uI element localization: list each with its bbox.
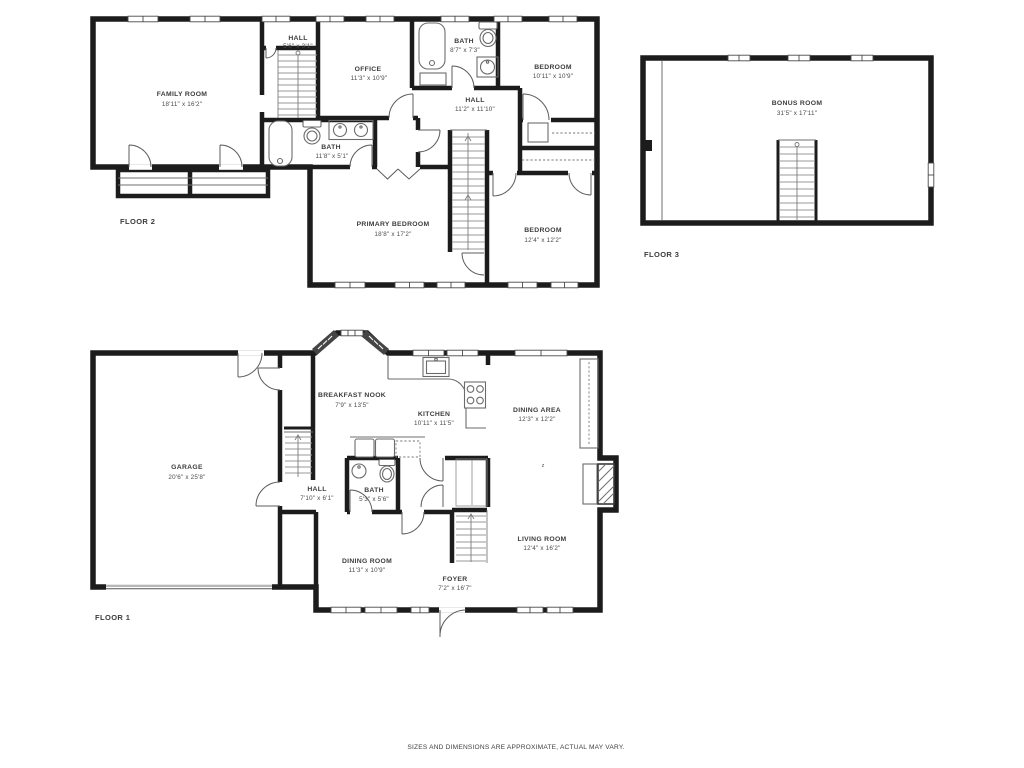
room-dims: 12'3" x 12'2"	[518, 416, 555, 423]
stove-icon	[465, 382, 486, 408]
room-label: OFFICE	[355, 66, 382, 73]
room-label: KITCHEN	[418, 411, 450, 418]
bath-cabinet-icon	[420, 73, 446, 85]
room-dims: 18'11" x 16'2"	[162, 101, 202, 108]
room-dims: 5'6" x 3'1"	[283, 43, 313, 50]
floor-3-label: FLOOR 3	[644, 250, 679, 259]
room-dims: 11'2" x 11'10"	[455, 106, 495, 113]
bay-window	[312, 330, 389, 355]
room-label: PRIMARY BEDROOM	[357, 221, 430, 228]
bathtub-icon	[419, 23, 445, 69]
floor-1-hall-stairs	[284, 432, 313, 477]
room-label: BREAKFAST NOOK	[318, 392, 386, 399]
hearth	[583, 464, 597, 504]
floor-1-fixtures	[352, 356, 614, 504]
floor-2-closets	[522, 123, 595, 160]
room-dims: 20'6" x 25'8"	[168, 474, 205, 481]
room-label: HALL	[307, 486, 326, 493]
room-label: BONUS ROOM	[772, 100, 823, 107]
room-dims: 10'11" x 10'9"	[533, 73, 573, 80]
room-dims: 10'11" x 11'5"	[414, 420, 454, 427]
floor-2-plan: FAMILY ROOM 18'11" x 16'2" HALL 5'6" x 3…	[93, 16, 597, 288]
room-dims: 8'7" x 7'3"	[450, 47, 480, 54]
disclaimer: SIZES AND DIMENSIONS ARE APPROXIMATE, AC…	[407, 744, 624, 751]
room-label: BATH	[364, 487, 384, 494]
wall-nub	[643, 140, 652, 151]
bifold-closet-doors	[377, 169, 420, 179]
room-dims: 7'2" x 16'7"	[438, 585, 471, 592]
room-dims: 7'9" x 13'5"	[335, 402, 368, 409]
toilet-icon	[379, 460, 395, 466]
room-label: HALL	[465, 97, 484, 104]
floor-2-deck	[118, 170, 268, 196]
room-label: BATH	[454, 38, 474, 45]
room-dims: 12'4" x 12'2"	[524, 237, 561, 244]
room-label: FAMILY ROOM	[157, 91, 208, 98]
sink-icon	[481, 60, 495, 74]
room-dims: 11'3" x 10'9"	[349, 567, 386, 574]
room-label: GARAGE	[171, 464, 203, 471]
dryer-icon	[376, 439, 395, 457]
floor-2-label: FLOOR 2	[120, 217, 155, 226]
north-marker: z	[542, 463, 545, 469]
room-label: HALL	[288, 35, 307, 42]
room-label: FOYER	[443, 576, 468, 583]
front-door	[440, 610, 466, 637]
room-dims: 31'5" x 17'11"	[777, 110, 817, 117]
floor-1-foyer-stairs	[456, 510, 487, 563]
stair-closet	[456, 459, 487, 506]
washer-icon	[355, 439, 374, 457]
floorplan-canvas: FAMILY ROOM 18'11" x 16'2" HALL 5'6" x 3…	[0, 0, 1024, 768]
floor-3-room-labels: BONUS ROOM 31'5" x 17'11"	[772, 100, 823, 117]
room-dims: 11'8" x 5'1"	[316, 153, 349, 160]
room-dims: 7'10" x 6'1"	[300, 495, 333, 502]
floor-1-windows	[106, 350, 573, 613]
room-label: BEDROOM	[534, 64, 572, 71]
room-label: LIVING ROOM	[518, 536, 567, 543]
toilet-icon	[303, 121, 321, 128]
room-label: DINING ROOM	[342, 558, 392, 565]
floorplan-page: FAMILY ROOM 18'11" x 16'2" HALL 5'6" x 3…	[0, 0, 1024, 768]
floor-3-windows	[728, 55, 934, 187]
floor-1-plan: z GARAGE 20'6" x 25'8" BREAKFAST NOOK 7'…	[93, 330, 616, 637]
bathtub-icon	[269, 121, 292, 166]
toilet-icon	[479, 22, 497, 29]
floor-2-hall-stairs	[278, 50, 317, 118]
cabinet-icon	[396, 441, 420, 457]
room-dims: 11'3" x 10'9"	[351, 75, 388, 82]
floor-1-room-labels: GARAGE 20'6" x 25'8" BREAKFAST NOOK 7'9"…	[168, 392, 566, 592]
floor-2-stairwell	[452, 133, 485, 250]
room-dims: 18'8" x 17'2"	[374, 231, 411, 238]
floor-3-stairs	[778, 140, 816, 222]
floor-1-label: FLOOR 1	[95, 613, 130, 622]
room-label: BATH	[321, 144, 341, 151]
floor-2-opening	[260, 95, 265, 112]
floor-3-plan: BONUS ROOM 31'5" x 17'11" FLOOR 3	[643, 55, 934, 259]
room-dims: 5'3" x 5'6"	[359, 496, 389, 503]
room-label: DINING AREA	[513, 407, 561, 414]
room-dims: 12'4" x 16'2"	[523, 545, 560, 552]
floor-2-windows	[128, 16, 578, 288]
room-label: BEDROOM	[524, 227, 562, 234]
